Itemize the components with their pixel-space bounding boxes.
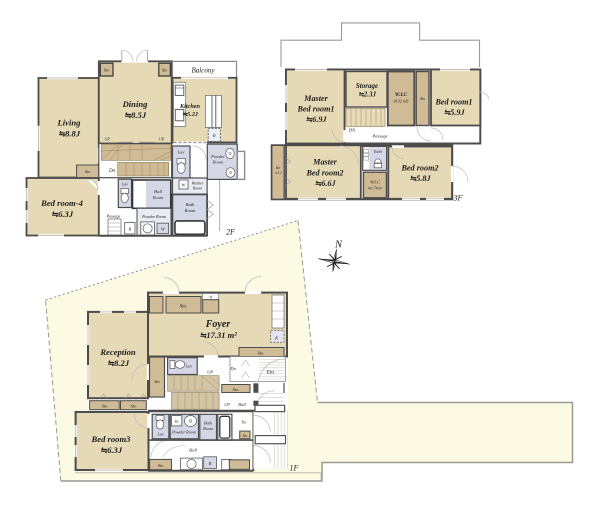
svg-text:≒5.2J: ≒5.2J <box>182 111 199 118</box>
svg-text:Reception: Reception <box>99 347 136 357</box>
svg-text:≒6.9J: ≒6.9J <box>305 115 327 124</box>
svg-text:W.I.C: W.I.C <box>370 180 380 185</box>
svg-text:W.I.C: W.I.C <box>395 92 408 98</box>
svg-text:Sto.: Sto. <box>180 305 188 310</box>
svg-text:Sto: Sto <box>104 68 109 73</box>
svg-text:Hall: Hall <box>153 189 163 194</box>
svg-text:Room: Room <box>202 426 213 431</box>
svg-text:Powder Room: Powder Room <box>141 214 166 219</box>
svg-text:Toilet: Toilet <box>374 150 383 154</box>
svg-text:Lav: Lav <box>185 364 192 369</box>
svg-text:Balcony: Balcony <box>192 67 216 75</box>
svg-text:≒6.6J: ≒6.6J <box>314 179 336 188</box>
svg-text:Bath: Bath <box>186 202 195 207</box>
svg-text:Passage: Passage <box>371 134 387 139</box>
svg-text:Passage: Passage <box>106 214 121 219</box>
svg-text:≒17.31 m²: ≒17.31 m² <box>199 330 237 340</box>
svg-text:CP: CP <box>224 402 230 407</box>
svg-text:Room: Room <box>184 208 196 213</box>
svg-text:Dining: Dining <box>122 99 149 109</box>
svg-text:R: R <box>208 461 212 466</box>
svg-text:3F: 3F <box>453 194 463 203</box>
svg-text:Sto: Sto <box>85 169 90 174</box>
svg-text:Powder Room: Powder Room <box>171 430 196 435</box>
svg-text:W: W <box>161 226 165 231</box>
svg-text:Bed room-4: Bed room-4 <box>40 198 83 208</box>
svg-text:Lav: Lav <box>157 432 164 437</box>
svg-text:W: W <box>175 419 179 424</box>
svg-text:Lav: Lav <box>177 150 185 155</box>
svg-text:Dn: Dn <box>229 366 236 371</box>
svg-text:N: N <box>334 240 343 251</box>
svg-text:Sto: Sto <box>102 404 109 409</box>
svg-text:UP: UP <box>159 137 165 142</box>
svg-text:W: W <box>182 182 186 187</box>
svg-text:Room: Room <box>192 186 202 191</box>
svg-text:Master: Master <box>312 158 337 167</box>
svg-text:2F: 2F <box>226 228 235 237</box>
svg-text:≒5.8J: ≒5.8J <box>409 174 431 183</box>
svg-text:Sto: Sto <box>131 404 138 409</box>
svg-text:Master: Master <box>303 94 328 103</box>
svg-text:R: R <box>212 133 216 138</box>
svg-text:Sto: Sto <box>158 463 163 468</box>
svg-text:≒1.74 m²: ≒1.74 m² <box>368 187 384 191</box>
svg-text:≒8.8J: ≒8.8J <box>58 129 81 139</box>
svg-text:≒1.J: ≒1.J <box>274 171 282 175</box>
svg-text:Sto: Sto <box>243 434 248 438</box>
svg-text:Hall: Hall <box>237 402 246 407</box>
svg-text:Sto.: Sto. <box>257 351 264 356</box>
svg-text:≒8.2J: ≒8.2J <box>107 358 130 368</box>
svg-text:UP: UP <box>207 370 213 375</box>
svg-text:DN: DN <box>348 128 356 133</box>
svg-text:Bed room1: Bed room1 <box>434 98 472 107</box>
svg-text:Ent.: Ent. <box>266 370 276 376</box>
svg-text:UP: UP <box>104 137 110 142</box>
svg-text:Foyer: Foyer <box>205 319 231 330</box>
svg-text:Lav: Lav <box>121 182 128 187</box>
svg-text:Room: Room <box>152 195 163 200</box>
svg-text:Bed room3: Bed room3 <box>91 434 132 444</box>
svg-text:Room: Room <box>212 160 223 165</box>
svg-text:Bed room2: Bed room2 <box>400 164 438 173</box>
svg-text:Sto: Sto <box>276 166 281 170</box>
svg-text:Bath: Bath <box>204 421 212 426</box>
svg-text:≒2.3J: ≒2.3J <box>358 91 377 99</box>
svg-text:Sto.: Sto. <box>233 387 240 392</box>
svg-text:(4.32 m²): (4.32 m²) <box>394 99 409 104</box>
svg-text:Powder: Powder <box>210 154 225 159</box>
svg-text:Bed room2: Bed room2 <box>305 169 343 178</box>
svg-text:≒5.9J: ≒5.9J <box>443 108 465 117</box>
svg-text:Bed room1: Bed room1 <box>296 105 334 114</box>
svg-text:≒8.5J: ≒8.5J <box>124 110 147 120</box>
svg-text:Tur: Tur <box>241 421 247 425</box>
svg-text:Living: Living <box>57 118 82 128</box>
svg-text:1F: 1F <box>290 464 299 473</box>
svg-text:R: R <box>127 227 131 232</box>
svg-text:Sto: Sto <box>154 379 159 384</box>
svg-text:Storage: Storage <box>356 82 378 90</box>
svg-text:≒6.3J: ≒6.3J <box>100 445 123 455</box>
svg-text:≒6.3J: ≒6.3J <box>51 209 74 219</box>
svg-text:R: R <box>274 336 278 341</box>
svg-text:Sto: Sto <box>420 97 425 101</box>
svg-text:Sto: Sto <box>162 68 167 73</box>
svg-text:Hall: Hall <box>188 448 198 453</box>
svg-text:Dn: Dn <box>108 169 116 174</box>
svg-text:Kitchen: Kitchen <box>179 103 200 110</box>
